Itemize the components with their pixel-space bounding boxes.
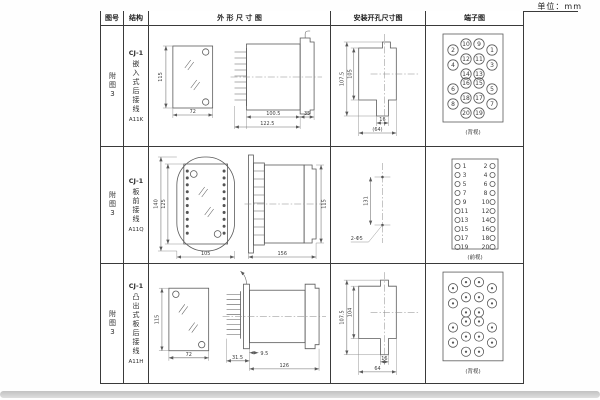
svg-text:12: 12	[482, 208, 490, 215]
terminal-pins	[448, 278, 496, 357]
svg-text:4: 4	[484, 172, 488, 179]
svg-text:12: 12	[462, 56, 470, 63]
fig-no-label: 附图3	[109, 72, 116, 100]
fig-no-cell-row1: 附图3	[101, 26, 124, 147]
svg-text:20: 20	[462, 110, 470, 117]
svg-text:17: 17	[461, 235, 469, 242]
dim-front-height: 115	[158, 72, 164, 82]
fig-no-label: 附图3	[109, 191, 116, 219]
side-view: 31.5 9.5 126	[223, 271, 326, 371]
mounting-drawing-a11q: 131 2-Φ5	[331, 147, 425, 263]
structure-cell-row3: CJ-1 凸出式板后接线 A11H	[124, 264, 149, 383]
dim-cutout-inner-height: 104	[347, 308, 353, 318]
dim-pins-depth: 31.5	[232, 355, 243, 361]
svg-text:13: 13	[461, 217, 469, 224]
terminal-view-caption: (背视)	[465, 367, 480, 375]
terminal-diagram-a11h: (背视)	[426, 264, 523, 383]
col-header-mounting: 安装开孔尺寸图	[331, 11, 426, 26]
document-page: 单位：mm 图号 结构 外 形 尺 寸 图 安装开孔尺寸图 端子图 附图3 CJ…	[0, 0, 600, 400]
dim-flange-height: 140	[153, 199, 159, 209]
svg-text:10: 10	[482, 199, 490, 206]
dim-total-length: 122.5	[260, 121, 274, 127]
structure-cell-row2: CJ-1 板前接线 A11Q	[124, 147, 149, 264]
fig-no-cell-row3: 附图3	[101, 264, 124, 383]
svg-text:7: 7	[490, 101, 494, 108]
svg-text:15: 15	[461, 226, 469, 233]
svg-text:7: 7	[463, 190, 467, 197]
glass-hatch	[179, 304, 198, 332]
dim-flange-depth: 35	[304, 111, 310, 117]
dim-cutout-outer-height: 107.5	[339, 310, 345, 324]
mount-type-label: 凸出式板后接线	[131, 293, 141, 356]
dim-slot-width: 16	[379, 117, 385, 123]
fig-no-label: 附图3	[109, 310, 116, 338]
clip-arrow	[240, 271, 246, 284]
structure-code-label: A11K	[129, 117, 143, 123]
front-view: 115 72	[154, 288, 208, 361]
front-view: 140 125 105	[153, 157, 234, 259]
glass-hatch	[199, 187, 214, 217]
mounting-cell-row1: 107.5 105 16 (64)	[331, 26, 426, 147]
dim-front-width: 72	[186, 352, 192, 358]
svg-text:1: 1	[463, 163, 467, 170]
svg-text:18: 18	[462, 95, 470, 102]
mounting-drawing-a11k: 107.5 105 16 (64)	[331, 26, 425, 146]
svg-text:3: 3	[463, 172, 467, 179]
col-header-structure: 结构	[124, 11, 149, 26]
dim-cutout-outer-height: 107.5	[339, 72, 345, 86]
dim-front-height: 115	[154, 315, 160, 325]
front-view: 115 72	[158, 46, 213, 118]
mounting-cell-row3: 107.5 104 16 64	[331, 264, 426, 383]
terminal-cell-row2: 1234567891011121314151617181920 (前视)	[426, 147, 523, 264]
svg-text:4: 4	[451, 62, 455, 69]
terminal-cell-row3: (背视)	[426, 264, 523, 383]
svg-text:8: 8	[451, 101, 455, 108]
outline-cell-row1: 115 72 100.5 35 122.5	[149, 26, 331, 147]
svg-text:19: 19	[461, 244, 469, 251]
terminal-diagram-a11q: 1234567891011121314151617181920 (前视)	[426, 147, 523, 263]
terminal-block-ribs	[253, 171, 264, 235]
dim-front-width: 72	[190, 109, 196, 115]
outline-cell-row2: 140 125 105 156 115	[149, 147, 331, 264]
dimension-table: 图号 结构 外 形 尺 寸 图 安装开孔尺寸图 端子图 附图3 CJ-1 嵌入式…	[100, 11, 524, 384]
dim-body-length: 126	[280, 363, 289, 369]
svg-text:11: 11	[461, 208, 469, 215]
svg-text:6: 6	[484, 181, 488, 188]
mounting-hole	[381, 176, 384, 179]
dim-body-length: 100.5	[266, 111, 280, 117]
model-label: CJ-1	[129, 177, 143, 185]
dim-front-width: 105	[201, 251, 210, 257]
outline-drawing-a11h: 115 72 31.5 9.5	[149, 264, 330, 383]
terminal-pins: 1234567891011121314151617181920	[455, 163, 495, 251]
svg-text:9: 9	[477, 41, 481, 48]
dim-side-height: 115	[322, 199, 328, 209]
svg-text:3: 3	[490, 62, 494, 69]
model-label: CJ-1	[129, 282, 143, 290]
structure-cell-row1: CJ-1 嵌入式后接线 A11K	[124, 26, 149, 147]
svg-text:1: 1	[490, 47, 494, 54]
terminal-pins-comb	[227, 294, 241, 334]
svg-text:8: 8	[484, 190, 488, 197]
side-view: 156 115	[244, 155, 328, 259]
terminal-cell-row1: 2109141211314136161558181772019 (背视)	[426, 26, 523, 147]
dim-hole-span: 131	[363, 196, 369, 206]
dim-total-length: 156	[278, 251, 287, 257]
dim-cutout-inner-height: 105	[347, 69, 353, 79]
svg-text:18: 18	[482, 235, 490, 242]
outline-cell-row3: 115 72 31.5 9.5	[149, 264, 331, 383]
svg-text:5: 5	[463, 181, 467, 188]
col-header-outline: 外 形 尺 寸 图	[149, 11, 331, 26]
model-label: CJ-1	[129, 49, 143, 57]
structure-code-label: A11H	[129, 359, 144, 365]
dim-cutout-width: 64	[374, 366, 380, 372]
mount-type-label: 嵌入式后接线	[131, 60, 141, 114]
svg-text:10: 10	[462, 41, 470, 48]
clamp-hook	[305, 31, 310, 38]
outline-drawing-a11k: 115 72 100.5 35 122.5	[149, 26, 330, 146]
svg-text:14: 14	[482, 217, 490, 224]
svg-text:17: 17	[475, 95, 483, 102]
page-bottom-edge	[0, 391, 600, 398]
dim-slot-width: 16	[381, 356, 387, 362]
dim-cutout-width: (64)	[372, 127, 382, 133]
svg-text:14: 14	[462, 71, 470, 78]
svg-text:15: 15	[475, 80, 483, 87]
mount-type-label: 板前接线	[131, 188, 141, 224]
outline-drawing-a11q: 140 125 105 156 115	[149, 147, 330, 263]
col-header-terminal: 端子图	[426, 11, 523, 26]
svg-text:6: 6	[451, 86, 455, 93]
svg-text:16: 16	[482, 226, 490, 233]
terminal-view-caption: (前视)	[467, 253, 482, 261]
svg-text:19: 19	[475, 110, 483, 117]
mounting-drawing-a11h: 107.5 104 16 64	[331, 264, 425, 383]
terminal-view-caption: (背视)	[465, 128, 480, 136]
side-view: 100.5 35 122.5	[231, 31, 322, 129]
mounting-cell-row2: 131 2-Φ5	[331, 147, 426, 264]
svg-text:2: 2	[484, 163, 488, 170]
fig-no-cell-row2: 附图3	[101, 147, 124, 264]
svg-text:16: 16	[462, 80, 470, 87]
hole-spec-label: 2-Φ5	[351, 236, 363, 242]
svg-text:20: 20	[482, 244, 490, 251]
dim-body-height: 125	[161, 199, 167, 209]
terminal-pins-comb	[235, 52, 247, 100]
svg-text:11: 11	[475, 56, 483, 63]
svg-text:9: 9	[463, 199, 467, 206]
svg-text:5: 5	[490, 86, 494, 93]
dim-step: 9.5	[260, 351, 268, 357]
structure-code-label: A11Q	[128, 227, 143, 233]
terminal-pins: 2109141211314136161558181772019	[448, 39, 497, 118]
svg-text:13: 13	[475, 71, 483, 78]
col-header-fig-no: 图号	[101, 11, 124, 26]
svg-text:2: 2	[451, 47, 455, 54]
terminal-diagram-a11k: 2109141211314136161558181772019 (背视)	[426, 26, 523, 146]
glass-hatch	[185, 60, 200, 90]
